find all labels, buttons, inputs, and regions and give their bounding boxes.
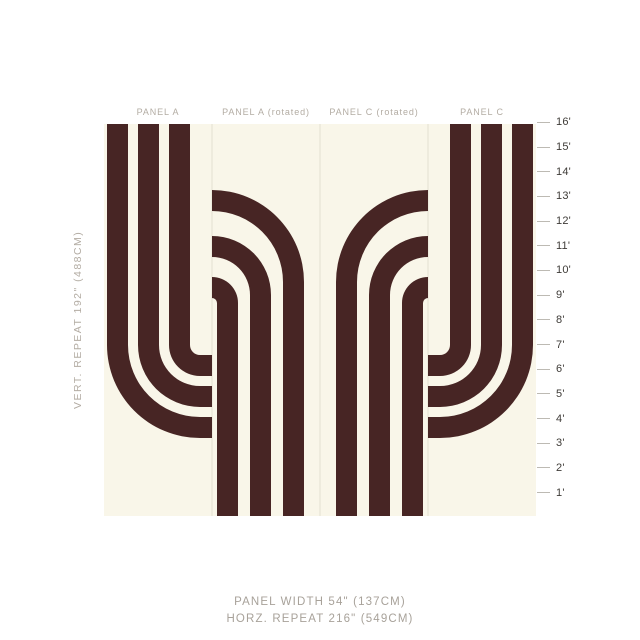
ruler-tick: 5' — [537, 382, 637, 407]
tick-line — [537, 418, 550, 419]
tick-line — [537, 492, 550, 493]
tick-label: 13' — [556, 190, 571, 202]
ruler-tick: 3' — [537, 431, 637, 456]
tick-line — [537, 393, 550, 394]
tick-label: 5' — [556, 388, 565, 400]
tick-label: 11' — [556, 240, 570, 252]
ruler-tick: 15' — [537, 135, 637, 160]
tick-line — [537, 171, 550, 172]
vertical-repeat-label: VERT. REPEAT 192" (488CM) — [68, 124, 88, 516]
ruler-tick: 2' — [537, 456, 637, 481]
tick-label: 12' — [556, 215, 571, 227]
tick-label: 9' — [556, 289, 565, 301]
tick-line — [537, 147, 550, 148]
tick-line — [537, 443, 550, 444]
panel-label-a-rotated: PANEL A (rotated) — [212, 107, 320, 119]
tick-line — [537, 344, 550, 345]
tick-label: 15' — [556, 141, 571, 153]
panel-label-c-rotated: PANEL C (rotated) — [320, 107, 428, 119]
tick-label: 4' — [556, 413, 565, 425]
tick-label: 1' — [556, 487, 565, 499]
ruler-tick: 10' — [537, 258, 637, 283]
panel-label-c: PANEL C — [428, 107, 536, 119]
tick-line — [537, 295, 550, 296]
ruler-tick: 9' — [537, 283, 637, 308]
ruler-tick: 11' — [537, 233, 637, 258]
tick-label: 3' — [556, 437, 565, 449]
tick-line — [537, 122, 550, 123]
ruler-tick: 8' — [537, 308, 637, 333]
tick-label: 6' — [556, 363, 565, 375]
ruler-tick: 7' — [537, 332, 637, 357]
tick-line — [537, 245, 550, 246]
ruler-tick: 16' — [537, 110, 637, 135]
height-ruler: 16' 15' 14' 13' 12' 11' 10' 9' 8' 7' 6' … — [537, 110, 637, 505]
tick-label: 7' — [556, 339, 565, 351]
ruler-tick: 6' — [537, 357, 637, 382]
tick-line — [537, 319, 550, 320]
tick-line — [537, 467, 550, 468]
ruler-tick: 12' — [537, 209, 637, 234]
tick-label: 16' — [556, 116, 571, 128]
panel-label-a: PANEL A — [104, 107, 212, 119]
ruler-tick: 4' — [537, 406, 637, 431]
tick-label: 14' — [556, 166, 571, 178]
ruler-tick: 13' — [537, 184, 637, 209]
ruler-tick: 1' — [537, 480, 637, 505]
tick-label: 10' — [556, 264, 571, 276]
ruler-tick: 14' — [537, 159, 637, 184]
panel-width-caption: PANEL WIDTH 54" (137CM) — [0, 596, 640, 608]
tick-line — [537, 221, 550, 222]
tick-label: 2' — [556, 462, 565, 474]
tick-label: 8' — [556, 314, 565, 326]
tick-line — [537, 270, 550, 271]
tick-line — [537, 196, 550, 197]
horz-repeat-caption: HORZ. REPEAT 216" (549CM) — [0, 613, 640, 625]
tick-line — [537, 369, 550, 370]
wallpaper-spec-sheet: PANEL A PANEL A (rotated) PANEL C (rotat… — [0, 0, 640, 640]
